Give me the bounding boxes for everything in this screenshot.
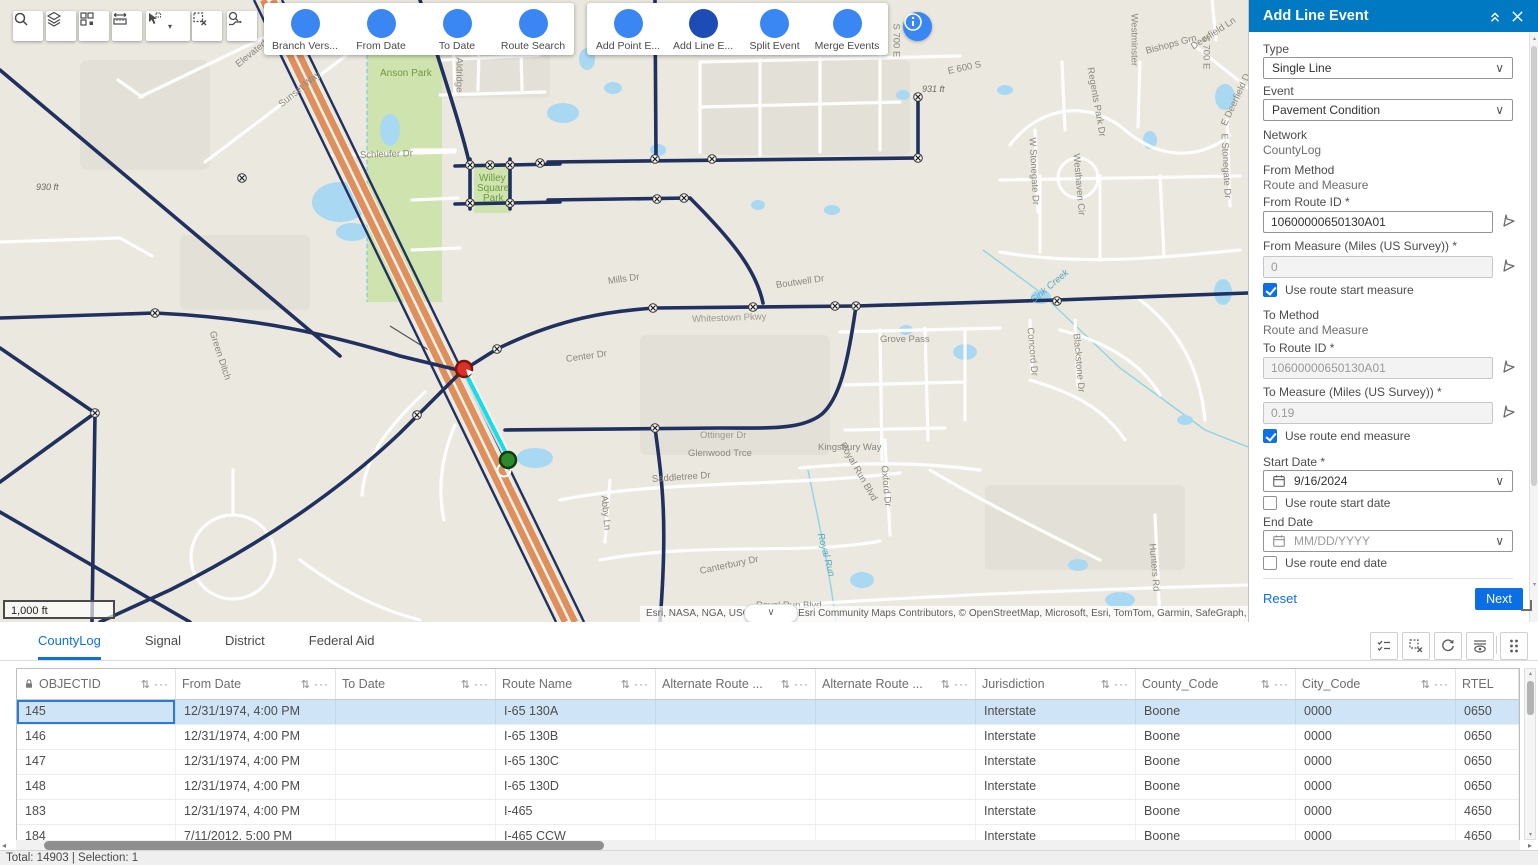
to-route-id-label: To Route ID * bbox=[1263, 341, 1334, 355]
table-cell[interactable]: Interstate bbox=[976, 725, 1136, 749]
end-date-label: End Date bbox=[1263, 515, 1313, 529]
table-cell[interactable] bbox=[336, 725, 496, 749]
tool-label: Branch Vers... bbox=[272, 40, 338, 52]
event-label: Event bbox=[1263, 84, 1294, 98]
calendar-icon bbox=[1272, 474, 1286, 488]
lock-icon bbox=[23, 678, 35, 690]
table-cell[interactable] bbox=[816, 775, 976, 799]
column-header-jurisdiction[interactable]: Jurisdiction⇅··· bbox=[976, 669, 1136, 699]
sort-icon[interactable]: ⇅ bbox=[461, 678, 470, 691]
tab-district[interactable]: District bbox=[225, 633, 265, 660]
close-icon[interactable] bbox=[1506, 5, 1528, 27]
collapse-icon[interactable] bbox=[1484, 5, 1506, 27]
table-tabs: CountyLogSignalDistrictFederal Aid bbox=[0, 628, 1538, 661]
table-cell[interactable]: 0000 bbox=[1296, 775, 1456, 799]
scroll-down-icon[interactable]: ▾ bbox=[1530, 581, 1538, 588]
checkbox[interactable] bbox=[1263, 556, 1277, 570]
sort-icon[interactable]: ⇅ bbox=[1421, 678, 1430, 691]
column-header-objectid[interactable]: OBJECTID⇅··· bbox=[17, 669, 176, 699]
table-cell[interactable]: 0000 bbox=[1296, 700, 1456, 724]
table-options-button[interactable] bbox=[1500, 632, 1528, 660]
tab-countylog[interactable]: CountyLog bbox=[38, 633, 101, 660]
panel-scrollbar[interactable]: ▴ ▾ bbox=[1529, 32, 1538, 622]
table-cell[interactable]: Interstate bbox=[976, 750, 1136, 774]
table-status-bar: Total: 14903 | Selection: 1 bbox=[0, 850, 1538, 865]
table-row[interactable]: 14612/31/1974, 4:00 PMI-65 130BInterstat… bbox=[17, 725, 1519, 750]
table-cell[interactable]: 0650 bbox=[1456, 725, 1519, 749]
lrs-tools-card: Branch Vers...From DateTo DateRoute Sear… bbox=[264, 3, 574, 55]
column-menu-icon[interactable]: ··· bbox=[1274, 677, 1289, 691]
table-cell[interactable]: 4650 bbox=[1456, 800, 1519, 824]
info-button[interactable] bbox=[903, 12, 932, 41]
scroll-left-icon[interactable]: ◂ bbox=[2, 841, 6, 850]
event-tool-to-date[interactable]: To Date bbox=[426, 9, 488, 52]
table-cell[interactable] bbox=[816, 725, 976, 749]
event-tool-branch-vers[interactable]: Branch Vers... bbox=[274, 9, 336, 52]
show-selected-records-button[interactable] bbox=[1370, 632, 1398, 660]
event-edit-tools-card: Add Point E...Add Line E...Split EventMe… bbox=[587, 3, 888, 55]
column-menu-icon[interactable]: ··· bbox=[474, 677, 489, 691]
table-cell[interactable]: I-65 130A bbox=[496, 700, 656, 724]
basemap bbox=[0, 0, 1248, 622]
end-date-picker[interactable]: MM/DD/YYYY ∨ bbox=[1263, 530, 1513, 552]
table-cell[interactable]: 0650 bbox=[1456, 750, 1519, 774]
table-cell[interactable]: 12/31/1974, 4:00 PM bbox=[176, 725, 336, 749]
pick-from-measure-icon[interactable] bbox=[1501, 258, 1519, 276]
checkbox-label: Use route end measure bbox=[1285, 429, 1410, 443]
use-route-start-date-checkbox[interactable]: Use route start date bbox=[1263, 496, 1390, 510]
sort-icon[interactable]: ⇅ bbox=[141, 678, 150, 691]
attribute-table: OBJECTID⇅···From Date⇅···To Date⇅···Rout… bbox=[16, 668, 1520, 842]
divider bbox=[1263, 578, 1513, 579]
checkbox-label: Use route start measure bbox=[1285, 283, 1414, 297]
add-line-event-panel: Add Line Event Type Single Line ∨ Event … bbox=[1248, 0, 1538, 622]
next-button[interactable]: Next bbox=[1475, 588, 1523, 610]
route-tool-icon bbox=[227, 11, 243, 27]
table-cell[interactable]: Boone bbox=[1136, 725, 1296, 749]
table-cell[interactable]: I-465 bbox=[496, 800, 656, 824]
clear-table-selection-button[interactable] bbox=[1402, 632, 1430, 660]
table-cell[interactable]: 12/31/1974, 4:00 PM bbox=[176, 700, 336, 724]
tab-federal-aid[interactable]: Federal Aid bbox=[309, 633, 375, 660]
tool-label: Add Line E... bbox=[673, 40, 733, 52]
scroll-down-icon[interactable]: ▾ bbox=[1526, 831, 1535, 838]
divider bbox=[1496, 636, 1497, 654]
tool-label: To Date bbox=[439, 40, 475, 52]
checkbox[interactable] bbox=[1263, 496, 1277, 510]
clear-selection-tool-button[interactable] bbox=[192, 11, 222, 41]
sort-icon[interactable]: ⇅ bbox=[1101, 678, 1110, 691]
table-header-row: OBJECTID⇅···From Date⇅···To Date⇅···Rout… bbox=[17, 669, 1519, 700]
type-value: Single Line bbox=[1272, 61, 1331, 75]
calendar-icon bbox=[1272, 534, 1286, 548]
measure-tool-button[interactable] bbox=[112, 11, 142, 41]
table-row[interactable]: 14712/31/1974, 4:00 PMI-65 130CInterstat… bbox=[17, 750, 1519, 775]
column-header-rtel[interactable]: RTEL bbox=[1456, 669, 1519, 699]
chevron-down-icon: ∨ bbox=[767, 607, 774, 618]
event-tool-merge-events[interactable]: Merge Events bbox=[816, 9, 878, 52]
start-date-value: 9/16/2024 bbox=[1294, 474, 1347, 488]
column-header-city-code[interactable]: City_Code⇅··· bbox=[1296, 669, 1456, 699]
type-label: Type bbox=[1263, 42, 1289, 56]
event-tool-add-point-e[interactable]: Add Point E... bbox=[597, 9, 659, 52]
column-menu-icon[interactable]: ··· bbox=[1114, 677, 1129, 691]
attribute-table-section: CountyLogSignalDistrictFederal Aid OBJEC… bbox=[0, 622, 1538, 865]
table-vertical-scrollbar[interactable]: ▴ ▾ bbox=[1524, 668, 1536, 840]
table-row[interactable]: 14512/31/1974, 4:00 PMI-65 130AInterstat… bbox=[17, 700, 1519, 725]
table-cell[interactable]: 148 bbox=[17, 775, 176, 799]
table-cell[interactable] bbox=[336, 700, 496, 724]
column-header-county-code[interactable]: County_Code⇅··· bbox=[1136, 669, 1296, 699]
table-cell[interactable]: Boone bbox=[1136, 800, 1296, 824]
table-cell[interactable] bbox=[336, 775, 496, 799]
table-cell[interactable]: 0650 bbox=[1456, 775, 1519, 799]
start-date-picker[interactable]: 9/16/2024 ∨ bbox=[1263, 470, 1513, 492]
pick-to-measure-icon[interactable] bbox=[1501, 404, 1519, 422]
tool-label: Merge Events bbox=[815, 40, 880, 52]
search-icon bbox=[13, 11, 29, 27]
panel-resize-handle[interactable] bbox=[1521, 600, 1532, 611]
event-tool-add-line-e[interactable]: Add Line E... bbox=[673, 9, 733, 52]
select-tool-button[interactable]: ▾ bbox=[146, 11, 190, 41]
select-icon bbox=[146, 11, 162, 27]
map-canvas[interactable]: Elevated WaySunset WayAnson ParkWilleySq… bbox=[0, 0, 1248, 622]
table-cell[interactable]: Boone bbox=[1136, 700, 1296, 724]
table-cell[interactable]: I-65 130B bbox=[496, 725, 656, 749]
from-route-id-input[interactable] bbox=[1263, 211, 1493, 233]
sort-icon[interactable]: ⇅ bbox=[301, 678, 310, 691]
table-cell[interactable]: 12/31/1974, 4:00 PM bbox=[176, 800, 336, 824]
chevron-down-icon: ∨ bbox=[1495, 534, 1504, 548]
table-cell[interactable]: 147 bbox=[17, 750, 176, 774]
table-cell[interactable] bbox=[656, 775, 816, 799]
column-header-from-date[interactable]: From Date⇅··· bbox=[176, 669, 336, 699]
event-tool-from-date[interactable]: From Date bbox=[350, 9, 412, 52]
table-cell[interactable] bbox=[656, 725, 816, 749]
table-cell[interactable]: Interstate bbox=[976, 700, 1136, 724]
table-cell[interactable]: 146 bbox=[17, 725, 176, 749]
table-cell[interactable] bbox=[336, 750, 496, 774]
table-cell[interactable] bbox=[816, 750, 976, 774]
table-cell[interactable]: 145 bbox=[17, 700, 176, 724]
caret-down-icon[interactable]: ▾ bbox=[168, 22, 172, 31]
table-cell[interactable]: Interstate bbox=[976, 800, 1136, 824]
checkbox-label: Use route start date bbox=[1285, 496, 1390, 510]
from-method-label: From Method bbox=[1263, 163, 1334, 177]
tab-signal[interactable]: Signal bbox=[145, 633, 181, 660]
table-cell[interactable]: I-65 130C bbox=[496, 750, 656, 774]
to-measure-input[interactable] bbox=[1263, 402, 1493, 424]
table-cell[interactable]: 0000 bbox=[1296, 800, 1456, 824]
sort-icon[interactable]: ⇅ bbox=[621, 678, 630, 691]
use-route-end-measure-checkbox[interactable]: Use route end measure bbox=[1263, 429, 1410, 443]
column-menu-icon[interactable]: ··· bbox=[1434, 677, 1449, 691]
column-menu-icon[interactable]: ··· bbox=[634, 677, 649, 691]
column-menu-icon[interactable]: ··· bbox=[154, 677, 169, 691]
event-select[interactable]: Pavement Condition ∨ bbox=[1263, 99, 1513, 121]
route-search-icon bbox=[264, 3, 280, 19]
search-tool-button[interactable] bbox=[13, 11, 43, 41]
scroll-up-icon[interactable]: ▴ bbox=[1526, 670, 1535, 677]
table-cell[interactable]: 0000 bbox=[1296, 750, 1456, 774]
from-route-id-label: From Route ID * bbox=[1263, 195, 1350, 209]
scrollbar-thumb[interactable] bbox=[44, 841, 604, 850]
info-icon bbox=[903, 12, 923, 32]
clear-selection-icon bbox=[192, 11, 208, 27]
scroll-up-icon[interactable]: ▴ bbox=[1530, 35, 1538, 42]
tool-label: Route Search bbox=[501, 40, 565, 52]
from-method-value: Route and Measure bbox=[1263, 178, 1368, 192]
event-value: Pavement Condition bbox=[1272, 103, 1380, 117]
chevron-down-icon: ∨ bbox=[1495, 61, 1504, 75]
tool-label: Split Event bbox=[749, 40, 799, 52]
pick-to-route-icon[interactable] bbox=[1501, 359, 1519, 377]
table-cell[interactable]: 0650 bbox=[1456, 700, 1519, 724]
column-header-to-date[interactable]: To Date⇅··· bbox=[336, 669, 496, 699]
from-measure-label: From Measure (Miles (US Survey)) * bbox=[1263, 239, 1457, 253]
table-cell[interactable] bbox=[816, 800, 976, 824]
end-date-placeholder: MM/DD/YYYY bbox=[1294, 534, 1370, 548]
route-start-marker[interactable] bbox=[456, 361, 474, 377]
event-tool-route-search[interactable]: Route Search bbox=[502, 9, 564, 52]
table-row[interactable]: 18312/31/1974, 4:00 PMI-465InterstateBoo… bbox=[17, 800, 1519, 825]
table-cell[interactable] bbox=[656, 700, 816, 724]
table-cell[interactable] bbox=[656, 800, 816, 824]
event-tool-split-event[interactable]: Split Event bbox=[747, 9, 802, 52]
type-select[interactable]: Single Line ∨ bbox=[1263, 57, 1513, 79]
merge-icon bbox=[587, 3, 603, 19]
panel-title: Add Line Event bbox=[1263, 8, 1484, 24]
network-value: CountyLog bbox=[1263, 143, 1321, 157]
layers-tool-button[interactable] bbox=[46, 11, 76, 41]
table-cell[interactable]: 0000 bbox=[1296, 725, 1456, 749]
column-menu-icon[interactable]: ··· bbox=[954, 677, 969, 691]
checkbox[interactable] bbox=[1263, 429, 1277, 443]
show-hide-fields-button[interactable] bbox=[1466, 632, 1494, 660]
grid-icon bbox=[79, 11, 95, 27]
scroll-right-icon[interactable]: ▸ bbox=[1528, 841, 1532, 850]
column-header-alternate-route[interactable]: Alternate Route ...⇅··· bbox=[656, 669, 816, 699]
table-row[interactable]: 14812/31/1974, 4:00 PMI-65 130DInterstat… bbox=[17, 775, 1519, 800]
network-label: Network bbox=[1263, 128, 1307, 142]
checkbox[interactable] bbox=[1263, 283, 1277, 297]
start-date-label: Start Date * bbox=[1263, 455, 1325, 469]
table-cell[interactable] bbox=[656, 750, 816, 774]
chevron-down-icon: ∨ bbox=[1495, 103, 1504, 117]
column-header-alternate-route[interactable]: Alternate Route ...⇅··· bbox=[816, 669, 976, 699]
to-method-value: Route and Measure bbox=[1263, 323, 1368, 337]
table-cell[interactable]: Interstate bbox=[976, 775, 1136, 799]
table-cell[interactable]: Boone bbox=[1136, 775, 1296, 799]
checkbox-label: Use route end date bbox=[1285, 556, 1387, 570]
attribution-toggle[interactable]: ∨ bbox=[744, 604, 798, 622]
table-cell[interactable] bbox=[336, 800, 496, 824]
sort-icon[interactable]: ⇅ bbox=[781, 678, 790, 691]
scale-bar: 1,000 ft bbox=[3, 600, 115, 619]
use-route-end-date-checkbox[interactable]: Use route end date bbox=[1263, 556, 1387, 570]
pick-from-route-icon[interactable] bbox=[1501, 213, 1519, 231]
panel-header: Add Line Event bbox=[1249, 0, 1538, 32]
scrollbar-thumb[interactable] bbox=[1527, 681, 1534, 715]
basemap-grid-tool-button[interactable] bbox=[79, 11, 109, 41]
table-cell[interactable]: Boone bbox=[1136, 750, 1296, 774]
to-method-label: To Method bbox=[1263, 308, 1319, 322]
route-select-tool-button[interactable] bbox=[227, 11, 257, 41]
tool-label: Add Point E... bbox=[596, 40, 660, 52]
to-route-id-input[interactable] bbox=[1263, 357, 1493, 379]
chevron-down-icon: ∨ bbox=[1495, 474, 1504, 488]
scrollbar-thumb[interactable] bbox=[1531, 46, 1537, 486]
column-header-route-name[interactable]: Route Name⇅··· bbox=[496, 669, 656, 699]
sort-icon[interactable]: ⇅ bbox=[1261, 678, 1270, 691]
map-attribution: Esri, NASA, NGA, USGS, FEMA | Esri Commu… bbox=[640, 606, 1248, 622]
measure-icon bbox=[112, 11, 128, 27]
layers-icon bbox=[46, 11, 62, 27]
to-measure-label: To Measure (Miles (US Survey)) * bbox=[1263, 385, 1442, 399]
sort-icon[interactable]: ⇅ bbox=[941, 678, 950, 691]
table-cell[interactable]: 183 bbox=[17, 800, 176, 824]
reset-button[interactable]: Reset bbox=[1263, 591, 1297, 606]
table-cell[interactable] bbox=[816, 700, 976, 724]
table-cell[interactable]: 12/31/1974, 4:00 PM bbox=[176, 775, 336, 799]
column-menu-icon[interactable]: ··· bbox=[314, 677, 329, 691]
refresh-button[interactable] bbox=[1434, 632, 1462, 660]
event-editor-app: Elevated WaySunset WayAnson ParkWilleySq… bbox=[0, 0, 1538, 865]
tool-label: From Date bbox=[356, 40, 406, 52]
table-body: 14512/31/1974, 4:00 PMI-65 130AInterstat… bbox=[17, 700, 1519, 842]
use-route-start-measure-checkbox[interactable]: Use route start measure bbox=[1263, 283, 1414, 297]
table-cell[interactable]: 12/31/1974, 4:00 PM bbox=[176, 750, 336, 774]
table-cell[interactable]: I-65 130D bbox=[496, 775, 656, 799]
column-menu-icon[interactable]: ··· bbox=[794, 677, 809, 691]
from-measure-input[interactable] bbox=[1263, 256, 1493, 278]
route-end-marker[interactable] bbox=[500, 452, 516, 468]
